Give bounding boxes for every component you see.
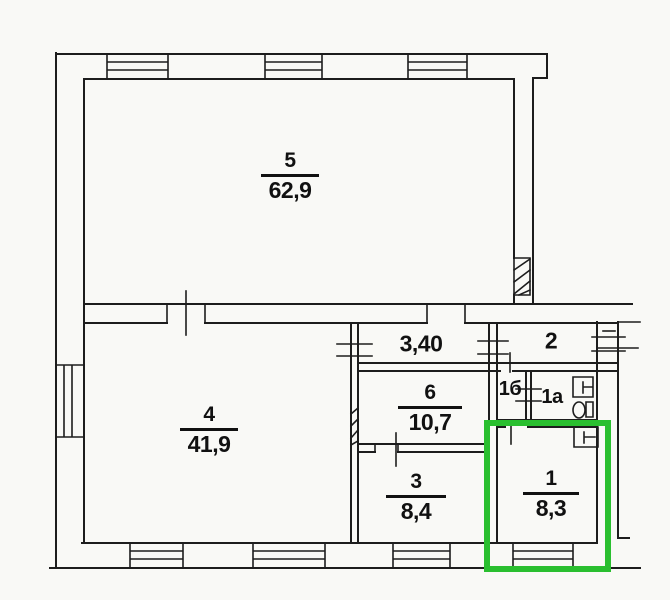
hatched-wall-segment-middle [351,408,358,445]
room-6-number: 6 [424,382,435,403]
room-5-area: 62,9 [269,179,312,202]
room-1b-label: 1б [499,379,521,399]
sink-icon-room1 [574,427,598,447]
room-4-label: 4 41,9 [180,404,238,456]
room-1-area: 8,3 [536,497,566,520]
room-5-walls [84,79,514,543]
room-1-label: 1 8,3 [523,468,579,520]
wall-middle-right [478,323,508,543]
room-3-label: 3 8,4 [386,471,446,523]
room-4-area: 41,9 [188,433,231,456]
room-5-label: 5 62,9 [261,150,319,202]
toilet-icon [573,402,593,418]
room-5-number: 5 [284,150,295,171]
room-3-number: 3 [410,471,421,492]
room-3-area: 8,4 [401,500,431,523]
wall-room6-room3 [358,433,489,466]
hallway-label: 3,40 [400,333,443,356]
room-2-label: 2 [545,330,557,353]
windows-bottom-wall [130,543,573,568]
room-1a-label: 1a [541,387,562,407]
window-left-wall [56,365,84,437]
room-6-area: 10,7 [409,411,452,434]
room-6-label: 6 10,7 [398,382,462,434]
windows-top-wall [107,54,467,79]
floor-plan: 5 62,9 4 41,9 6 10,7 3 8,4 1 8,3 3,40 2 … [0,0,670,600]
sink-icon [573,377,593,397]
room-1-number: 1 [545,468,556,489]
hatched-wall-segment-top [514,258,530,295]
room-4-number: 4 [203,404,214,425]
